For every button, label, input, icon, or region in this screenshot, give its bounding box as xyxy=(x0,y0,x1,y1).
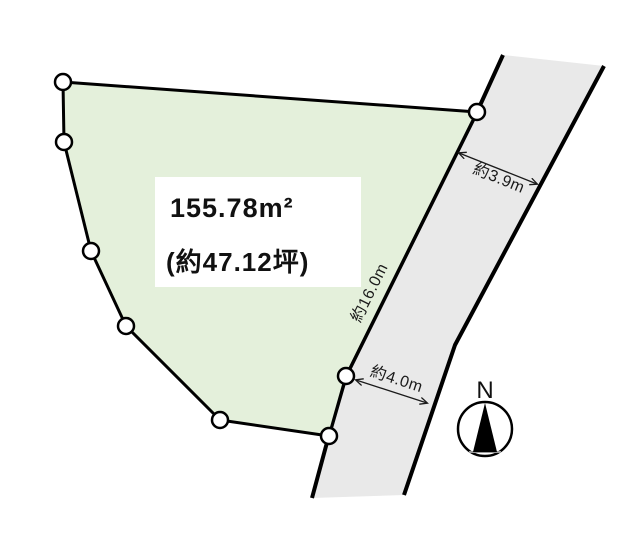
area-tsubo-label: (約47.12坪) xyxy=(166,247,309,277)
vertex-marker xyxy=(338,368,354,384)
vertex-marker xyxy=(469,104,485,120)
compass-north-label: N xyxy=(476,377,493,404)
site-plan-canvas: 155.78m² (約47.12坪) 約3.9m 約16.0m 約4.0m N xyxy=(0,0,640,551)
compass: N xyxy=(458,377,512,456)
vertex-marker xyxy=(321,428,337,444)
vertex-marker xyxy=(212,412,228,428)
area-sqm-label: 155.78m² xyxy=(170,193,294,223)
vertex-marker xyxy=(56,134,72,150)
vertex-marker xyxy=(83,243,99,259)
vertex-marker xyxy=(118,318,134,334)
land-plot-diagram: 155.78m² (約47.12坪) 約3.9m 約16.0m 約4.0m N xyxy=(0,0,640,551)
vertex-marker xyxy=(55,74,71,90)
